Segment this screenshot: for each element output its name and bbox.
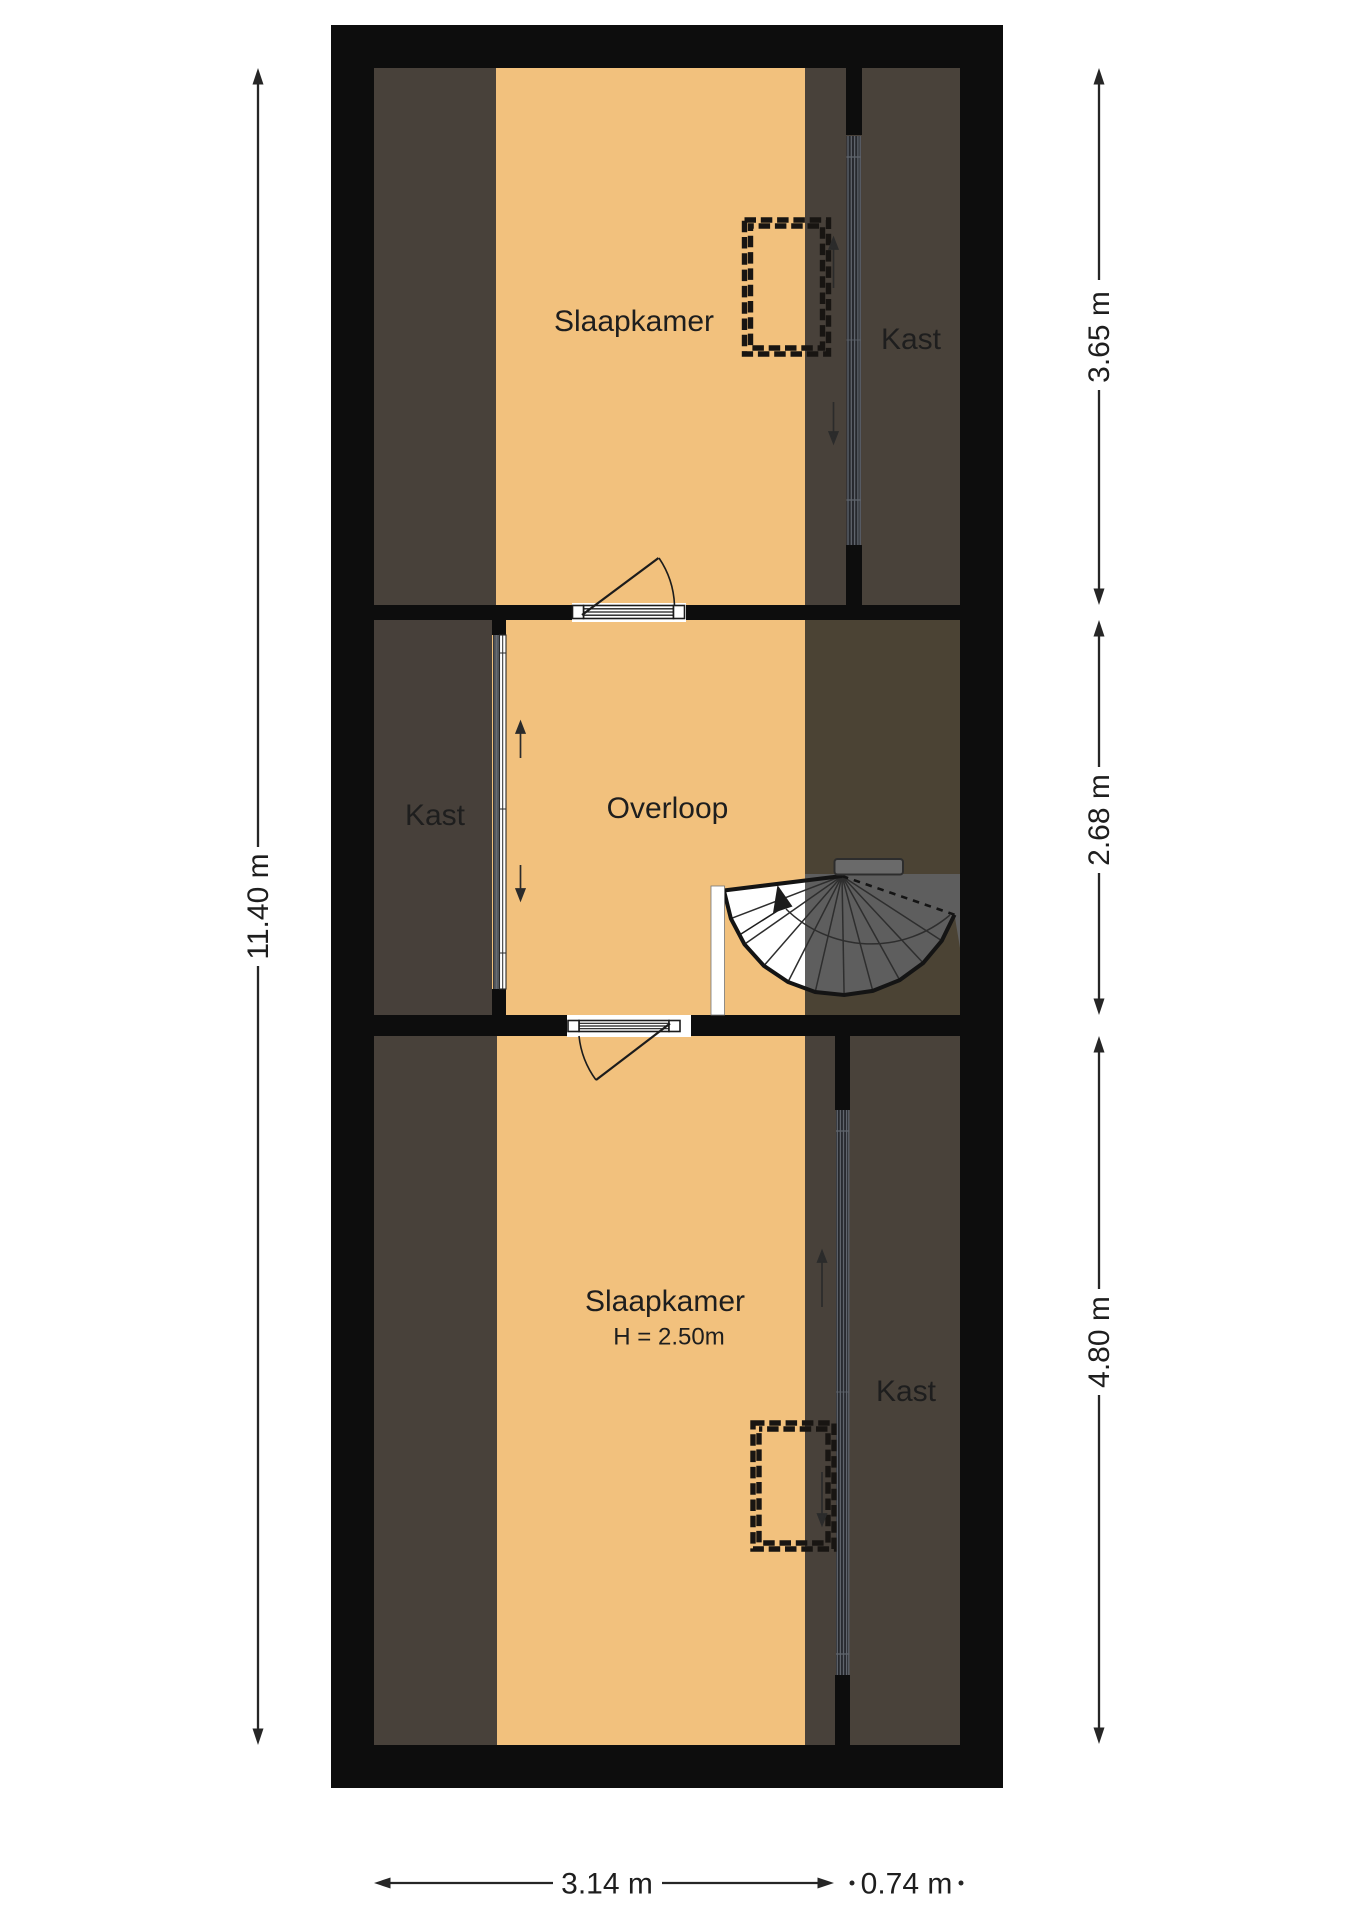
svg-text:Overloop: Overloop — [607, 792, 729, 825]
svg-text:Kast: Kast — [405, 799, 466, 832]
svg-text:3.65 m: 3.65 m — [1083, 291, 1116, 383]
svg-text:0.74 m: 0.74 m — [861, 1868, 953, 1901]
svg-text:Kast: Kast — [876, 1375, 937, 1408]
svg-text:Slaapkamer: Slaapkamer — [554, 305, 714, 338]
svg-text:Slaapkamer: Slaapkamer — [585, 1285, 745, 1318]
svg-text:4.80 m: 4.80 m — [1083, 1296, 1116, 1388]
svg-text:2.68 m: 2.68 m — [1083, 774, 1116, 866]
svg-text:H = 2.50m: H = 2.50m — [613, 1324, 724, 1351]
svg-text:11.40 m: 11.40 m — [242, 853, 275, 959]
svg-text:3.14 m: 3.14 m — [561, 1868, 653, 1901]
svg-text:Kast: Kast — [881, 323, 942, 356]
